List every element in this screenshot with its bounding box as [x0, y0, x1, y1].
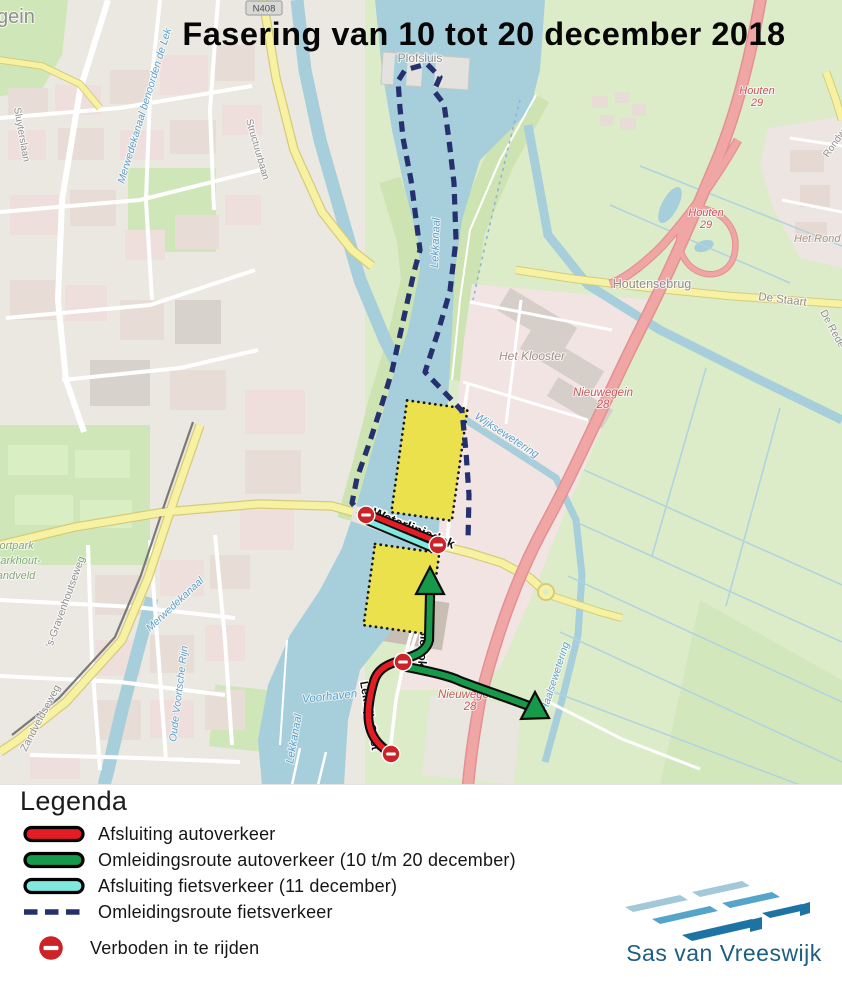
no-entry-icon [36, 933, 66, 963]
sas-van-vreeswijk-logo: Sas van Vreeswijk [622, 867, 827, 969]
legend-item-label: Afsluiting fietsverkeer (11 december) [98, 876, 397, 897]
legend-item-label: Verboden in te rijden [90, 938, 259, 959]
legend-item-car-detour: Omleidingsroute autoverkeer (10 t/m 20 d… [22, 849, 516, 871]
legend-item-bike-closure: Afsluiting fietsverkeer (11 december) [22, 875, 397, 897]
legend-title: Legenda [20, 786, 127, 817]
label-nieuwegein-1: Nieuwegein [573, 387, 633, 399]
label-sportpark-1: Sportpark [0, 540, 34, 552]
legend-item-no-entry: Verboden in te rijden [22, 933, 259, 963]
bike-closure-line-swatch [22, 876, 86, 896]
label-plofsluis: Plofsluis [398, 51, 443, 65]
label-het-klooster: Het Klooster [499, 349, 566, 363]
bike-detour-dashed-swatch [22, 902, 86, 922]
label-houtensebrug: Houtensebrug [613, 277, 692, 291]
svg-text:N408: N408 [253, 4, 276, 15]
no-entry-icon [393, 652, 412, 671]
no-entry-icon [356, 505, 375, 524]
no-entry-icon [381, 744, 400, 763]
car-closure-line-swatch [22, 824, 86, 844]
label-houten-1: Houten [739, 85, 774, 97]
legend-item-label: Omleidingsroute autoverkeer (10 t/m 20 d… [98, 850, 516, 871]
page-title: Fasering van 10 tot 20 december 2018 [182, 16, 785, 52]
label-sportpark-3: Zandveld [0, 570, 36, 582]
legend: Legenda Afsluiting autoverkeer Omleiding… [0, 784, 842, 990]
label-sportpark-2: Parkhout- [0, 555, 41, 567]
label-het-rond: Het Rond [794, 233, 841, 245]
label-nieuwegein-ref-2: 28 [463, 701, 477, 713]
legend-item-car-closure: Afsluiting autoverkeer [22, 823, 276, 845]
logo-text: Sas van Vreeswijk [626, 940, 822, 966]
car-detour-line-swatch [22, 850, 86, 870]
legend-item-bike-detour: Omleidingsroute fietsverkeer [22, 901, 333, 923]
legend-item-label: Afsluiting autoverkeer [98, 824, 276, 845]
road-ref-n408: N408 [246, 1, 282, 15]
label-houten-ref-2: 29 [699, 219, 712, 231]
map-svg: gein N408 Structuurbaan Sluyterslaan Mer… [0, 0, 842, 785]
label-houten-ref-1: 29 [750, 97, 763, 109]
legend-item-label: Omleidingsroute fietsverkeer [98, 902, 333, 923]
label-houten-2: Houten [688, 207, 723, 219]
fasering-map-flyer: gein N408 Structuurbaan Sluyterslaan Mer… [0, 0, 842, 990]
no-entry-icon [428, 535, 447, 554]
label-nieuwegein-ref-1: 28 [596, 399, 610, 411]
label-lekkanaal-1: Lekkanaal [429, 217, 443, 268]
label-nieuwegein-partial: gein [0, 6, 35, 28]
logo-graphic: Sas van Vreeswijk [622, 867, 827, 969]
map-canvas: gein N408 Structuurbaan Sluyterslaan Mer… [0, 0, 842, 785]
